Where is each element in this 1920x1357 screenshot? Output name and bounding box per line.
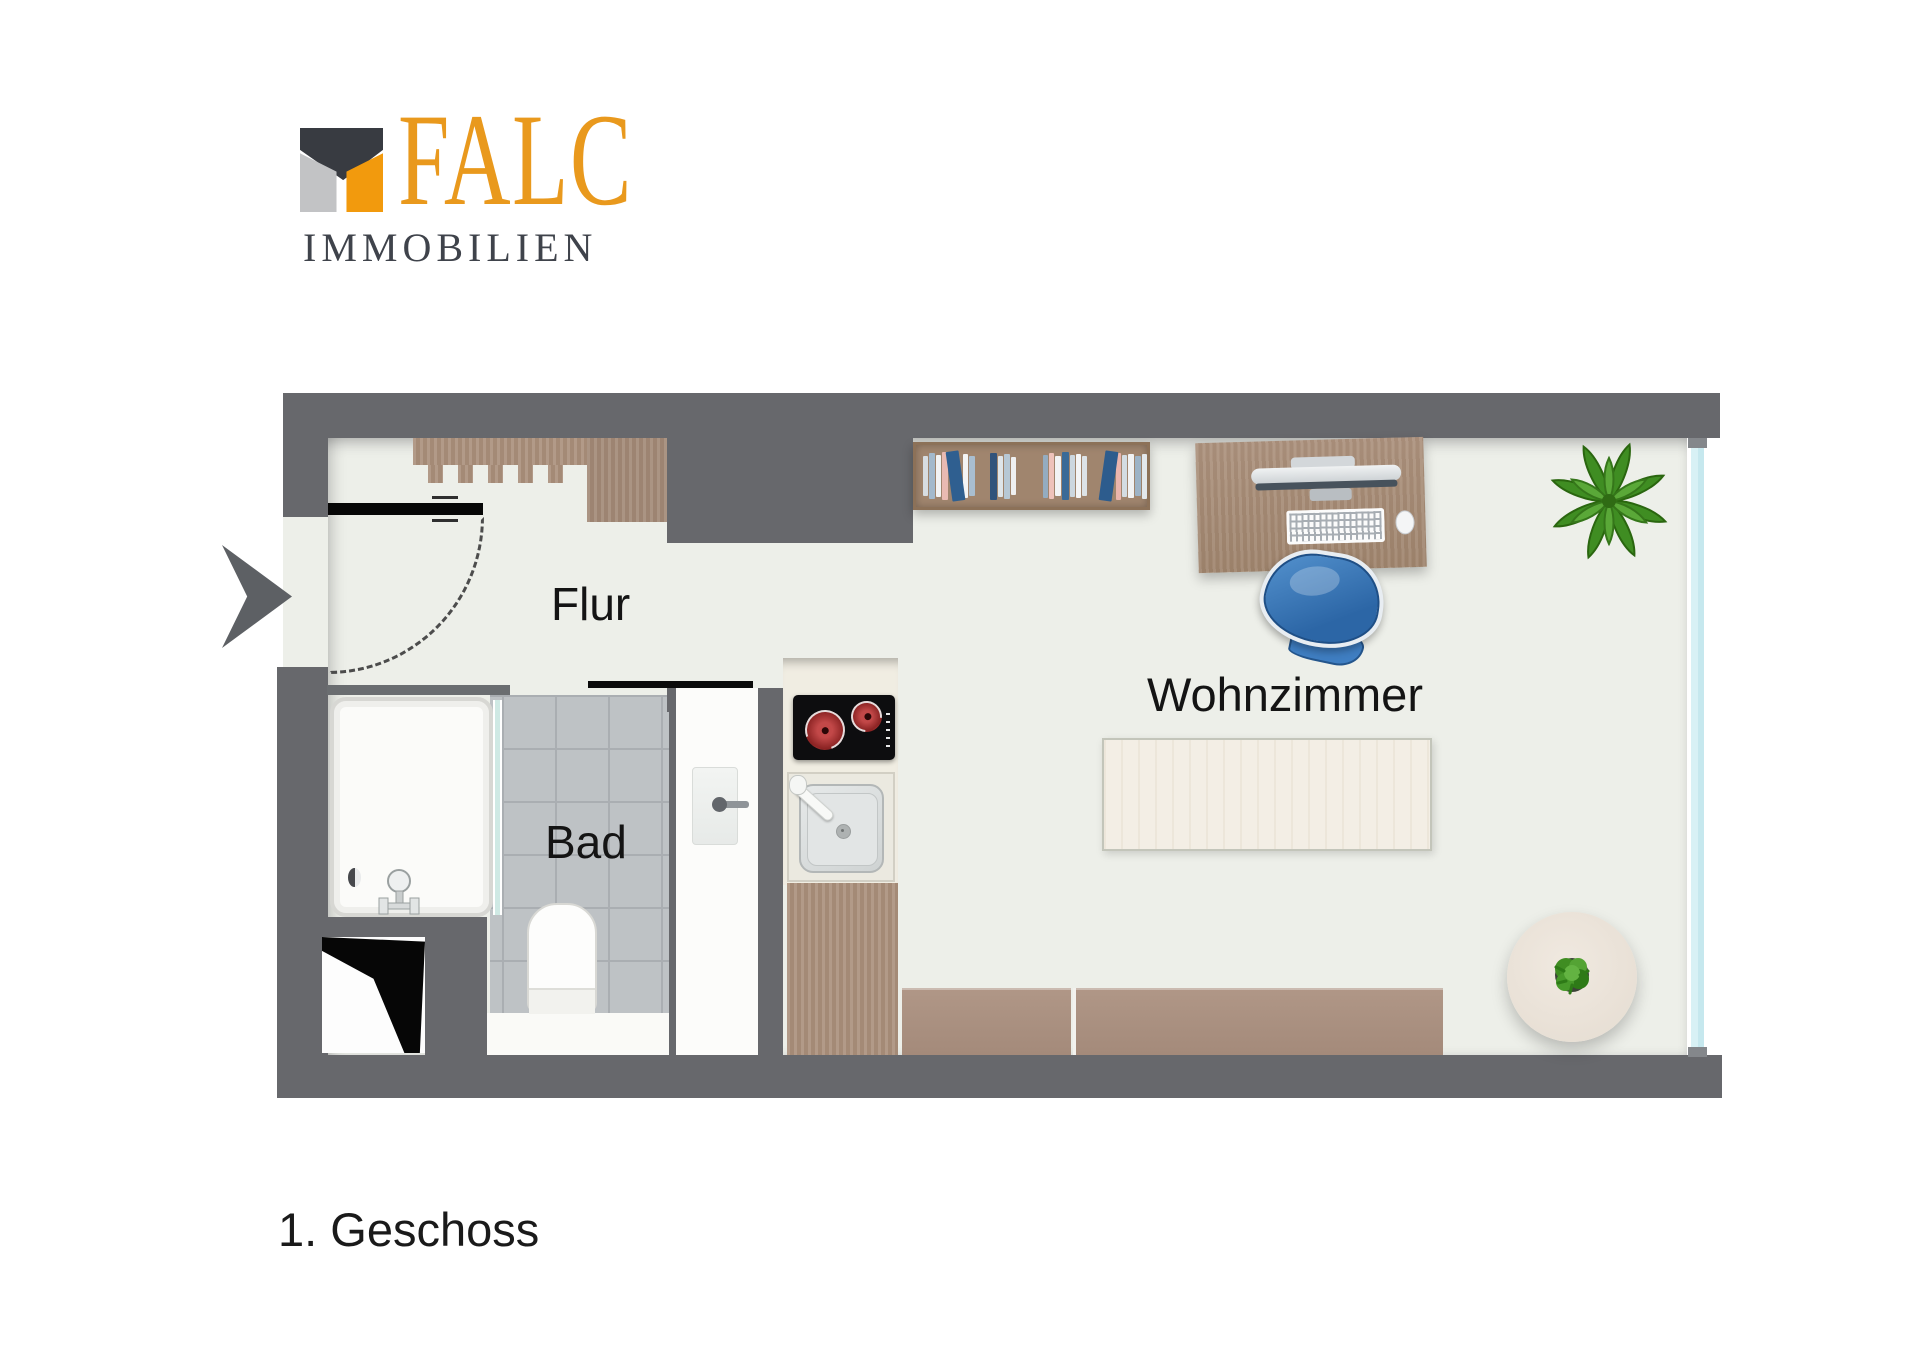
potted-plant-large-icon: [1544, 436, 1674, 566]
book-spine: [1049, 453, 1054, 499]
round-side-table: [1507, 912, 1637, 1042]
shower-glass: [493, 700, 502, 915]
brand-name: FALC: [398, 94, 633, 226]
burner-small: [845, 695, 889, 739]
kitchen-left-wall: [758, 688, 783, 1055]
room-label-wohnzimmer: Wohnzimmer: [1147, 667, 1423, 722]
sideboard-left: [902, 988, 1071, 1055]
book-spine: [1062, 452, 1069, 500]
sideboard-right: [1073, 988, 1443, 1055]
book-spine: [1070, 455, 1075, 497]
bookshelf: [913, 442, 1150, 510]
entrance-door-leaf: [328, 503, 483, 515]
wardrobe-hook: [428, 465, 443, 483]
wall-top: [283, 393, 1720, 438]
bathroom-door-strip: [676, 688, 758, 1055]
window-frame-top: [1688, 438, 1707, 448]
book-spine: [1122, 455, 1127, 497]
entry-opening: [283, 517, 328, 667]
room-label-bad: Bad: [545, 815, 627, 869]
book-spine: [1082, 456, 1087, 496]
book-spine: [936, 455, 941, 497]
wardrobe-hook: [548, 465, 563, 483]
keyboard-icon: [1286, 508, 1385, 545]
book-spine: [969, 456, 975, 496]
wall-flur-wohnzimmer: [667, 438, 913, 543]
book-spine: [1076, 454, 1081, 498]
monitor-stand: [1310, 488, 1352, 501]
floorplan-page: FALC IMMOBILIEN: [0, 0, 1920, 1357]
wardrobe-hook: [458, 465, 473, 483]
book-spine: [1043, 455, 1048, 498]
wardrobe-deep-section: [587, 438, 667, 522]
wardrobe-hook: [488, 465, 503, 483]
wall-left-upper: [283, 438, 328, 517]
wall-bottom: [277, 1055, 1722, 1098]
kitchen-base-cabinet: [787, 883, 898, 1055]
book-spine: [1055, 456, 1061, 496]
wall-left-lower: [277, 667, 328, 1055]
book-spine: [929, 453, 935, 499]
potted-plant-small-icon: [1544, 945, 1600, 1005]
book-spine: [1004, 454, 1010, 499]
bathroom-partition-wall: [327, 685, 510, 695]
sink-drain-icon: [836, 824, 851, 839]
mouse-icon: [1395, 510, 1415, 535]
shaft-top-wall: [281, 917, 487, 937]
stove-icon: [793, 695, 895, 760]
door-knob-icon: [712, 797, 727, 812]
book-spine: [1011, 457, 1016, 495]
dining-table: [1102, 738, 1432, 851]
shower-faucet-icon: [372, 865, 424, 921]
door-hinge-mark: [432, 496, 458, 499]
faucet-base-icon: [789, 775, 807, 795]
wardrobe-hook: [518, 465, 533, 483]
toilet-seat: [529, 988, 595, 1014]
book-spine: [990, 453, 997, 500]
bathroom-lower-band: [487, 1013, 669, 1055]
bathroom-door-line: [588, 681, 753, 688]
book-spine: [1128, 454, 1134, 498]
book-spine: [923, 456, 928, 496]
book-spine: [1135, 456, 1141, 496]
floor-level-label: 1. Geschoss: [278, 1202, 539, 1257]
book-spine: [998, 456, 1003, 497]
entrance-arrow-icon: [222, 545, 292, 648]
falc-logo-icon: [300, 128, 383, 212]
room-label-flur: Flur: [551, 577, 630, 631]
brand-subtitle: IMMOBILIEN: [303, 224, 597, 271]
shaft-right-wall: [425, 937, 487, 1055]
shower-drain-icon: [348, 868, 361, 887]
window-glass-front: [1688, 448, 1707, 1047]
stove-controls: [886, 713, 890, 747]
book-spine: [1142, 454, 1147, 499]
burner-large: [798, 703, 851, 756]
window-frame-bottom: [1688, 1047, 1707, 1057]
